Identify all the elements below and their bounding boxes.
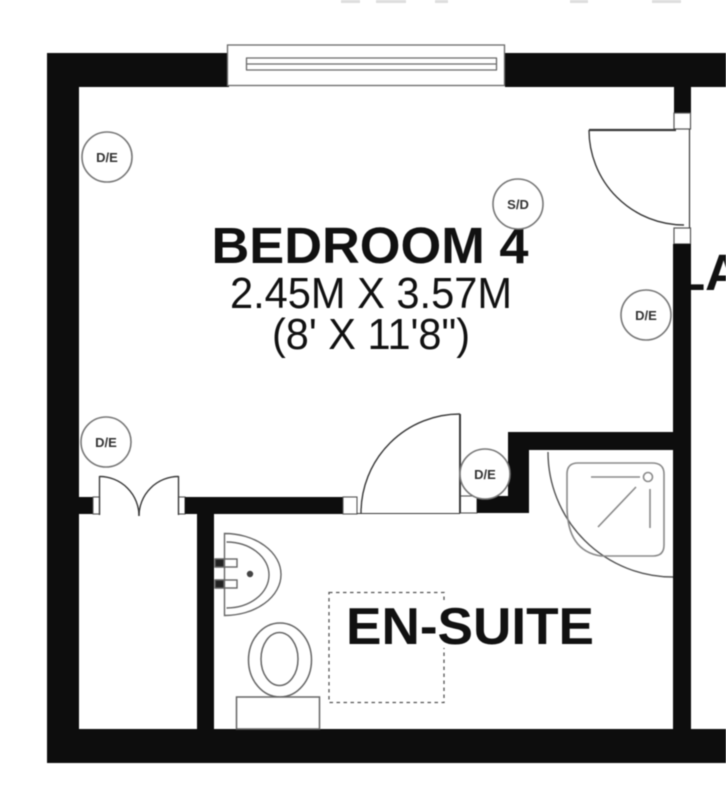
svg-text:D/E: D/E xyxy=(635,308,657,323)
svg-text:(8' X 11'8"): (8' X 11'8") xyxy=(272,310,470,359)
svg-text:D/E: D/E xyxy=(474,467,496,482)
svg-text:D/E: D/E xyxy=(95,435,117,450)
svg-text:BEDROOM 4: BEDROOM 4 xyxy=(212,217,530,274)
svg-text:EN-SUITE: EN-SUITE xyxy=(346,598,594,656)
svg-text:S/D: S/D xyxy=(507,197,529,212)
svg-text:D/E: D/E xyxy=(96,150,118,165)
